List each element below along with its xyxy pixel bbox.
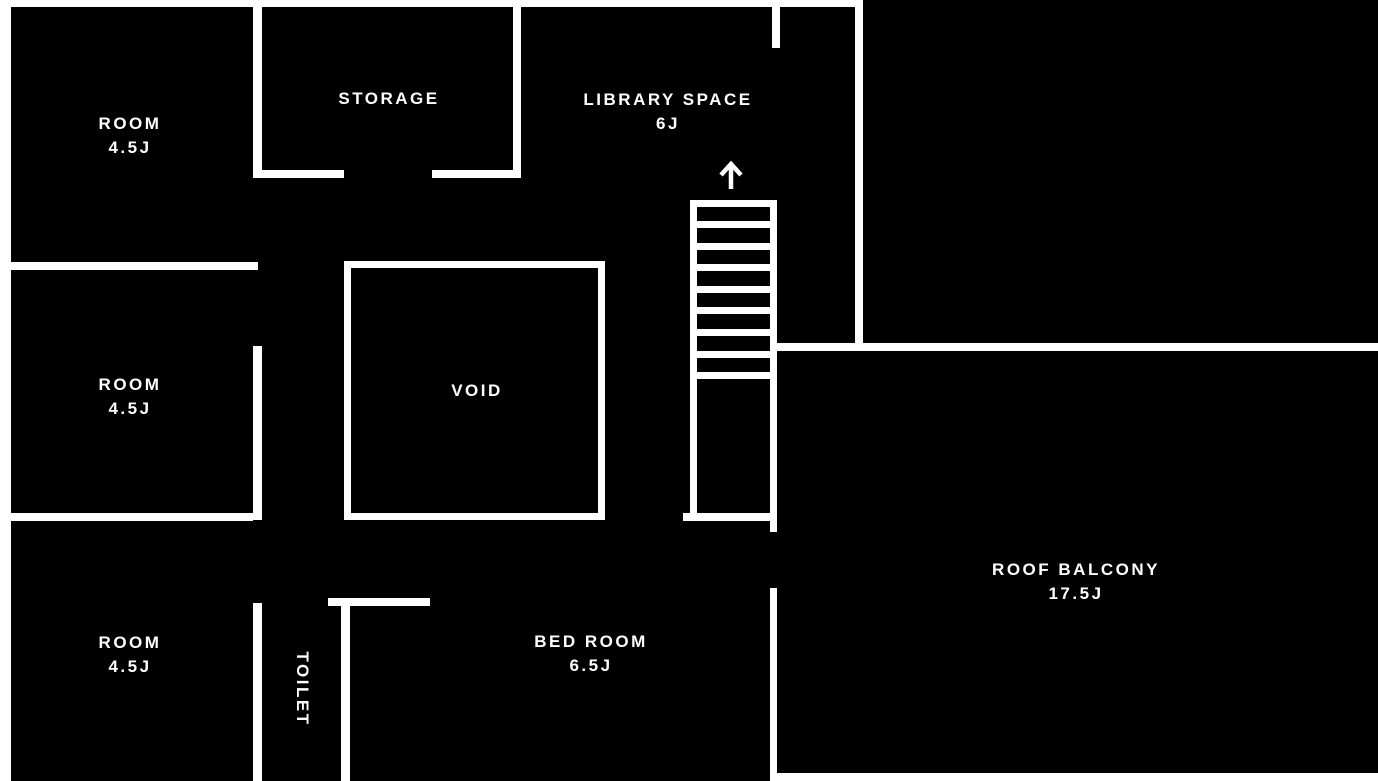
room-label-toilet: TOILET: [292, 651, 312, 726]
room-name: BED ROOM: [534, 630, 648, 654]
room-size: 4.5J: [99, 397, 162, 421]
stair-treads: [697, 200, 770, 532]
wall-bedroom-top: [328, 598, 430, 606]
wall-left-rooms-divider-2: [0, 513, 253, 521]
wall-toilet-left: [253, 603, 262, 781]
stair-rail-left: [690, 200, 697, 521]
room-label-top-left: ROOM 4.5J: [99, 112, 162, 160]
wall-library-stub: [772, 0, 780, 48]
room-name: ROOM: [99, 631, 162, 655]
room-name: STORAGE: [338, 87, 439, 111]
stair-tread: [697, 351, 770, 358]
room-size: 6J: [583, 112, 752, 136]
wall-storage-right: [513, 0, 521, 178]
stair-tread: [697, 329, 770, 336]
room-label-void: VOID: [451, 379, 503, 403]
room-name: TOILET: [292, 651, 312, 726]
room-size: 6.5J: [534, 654, 648, 678]
room-name: LIBRARY SPACE: [583, 88, 752, 112]
room-label-library: LIBRARY SPACE 6J: [583, 88, 752, 136]
wall-room-storage-divider: [253, 0, 262, 178]
stair-tread: [697, 307, 770, 314]
room-size: 4.5J: [99, 655, 162, 679]
wall-bedroom-left: [341, 598, 350, 781]
room-name: ROOM: [99, 373, 162, 397]
wall-storage-bottom-right: [432, 170, 521, 178]
stair-rail-right: [770, 200, 777, 532]
room-name: ROOM: [99, 112, 162, 136]
stair-tread: [697, 372, 770, 379]
room-label-bottom-left: ROOM 4.5J: [99, 631, 162, 679]
wall-top: [0, 0, 863, 7]
stair-tread: [697, 264, 770, 271]
wall-left: [0, 0, 11, 781]
room-label-middle-left: ROOM 4.5J: [99, 373, 162, 421]
wall-balcony-bottom: [770, 773, 1378, 781]
room-name: ROOF BALCONY: [992, 558, 1160, 582]
room-label-roof-balcony: ROOF BALCONY 17.5J: [992, 558, 1160, 606]
room-name: VOID: [451, 379, 503, 403]
wall-balcony-top: [777, 343, 1378, 351]
wall-middle-room-right: [253, 346, 262, 520]
floor-plan: ROOM 4.5J STORAGE LIBRARY SPACE 6J ROOM …: [0, 0, 1378, 781]
room-size: 4.5J: [99, 136, 162, 160]
stair-tread: [697, 243, 770, 250]
wall-right-upper: [855, 0, 863, 350]
room-size: 17.5J: [992, 582, 1160, 606]
room-label-storage: STORAGE: [338, 87, 439, 111]
wall-left-rooms-divider-1: [0, 262, 258, 270]
stair-tread: [697, 286, 770, 293]
room-label-bedroom: BED ROOM 6.5J: [534, 630, 648, 678]
up-arrow-icon: [715, 159, 747, 191]
wall-storage-bottom-left: [253, 170, 344, 178]
stair-tread: [697, 221, 770, 228]
wall-balcony-left-lower: [770, 588, 777, 781]
